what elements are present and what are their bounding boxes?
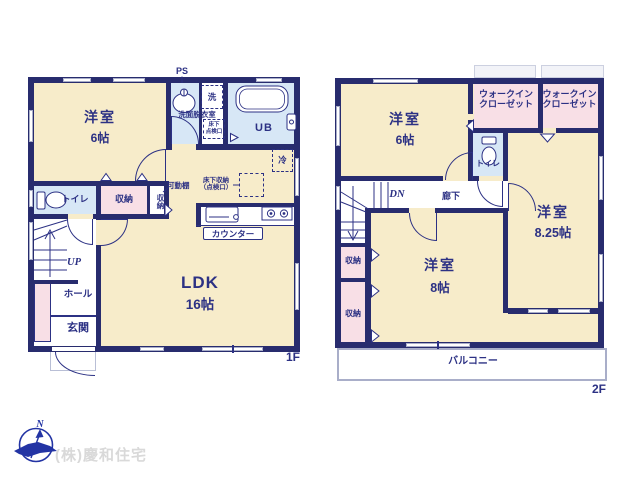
window xyxy=(29,222,34,260)
western6-2f-name: 洋室 xyxy=(377,111,433,127)
wall xyxy=(365,213,371,342)
wall xyxy=(365,208,409,213)
underfloor-hatch-l2: 点検口 xyxy=(206,129,223,136)
wic-a-l1: ウォークイン xyxy=(474,89,538,99)
wall xyxy=(199,203,294,207)
wall xyxy=(34,280,78,284)
wall xyxy=(503,211,508,313)
room-unit-bath xyxy=(228,83,294,144)
window xyxy=(336,186,341,210)
wall xyxy=(34,214,68,219)
floor2-label: 2F xyxy=(586,383,612,397)
window xyxy=(558,309,590,313)
fridge-label: 冷 xyxy=(278,155,287,165)
wic-b-label: ウォークイン クローゼット xyxy=(541,89,598,110)
western-1f-name: 洋室 xyxy=(67,109,133,125)
window xyxy=(113,78,145,83)
wall xyxy=(468,84,473,114)
up-label: UP xyxy=(62,257,86,269)
wall xyxy=(503,133,508,181)
entrance-label: 玄関 xyxy=(58,322,98,335)
closet-1f-b-label: 収納 xyxy=(151,189,164,213)
window xyxy=(373,79,418,84)
room-stairs-2f xyxy=(341,208,365,243)
window xyxy=(29,190,34,207)
eave xyxy=(474,65,536,78)
window xyxy=(599,254,604,302)
washer-label: 洗 xyxy=(208,92,217,102)
wall xyxy=(556,128,598,133)
wic-b-l1: ウォークイン xyxy=(541,89,598,99)
western8-size: 8帖 xyxy=(418,281,462,295)
wall xyxy=(196,203,201,227)
room-shoe-closet xyxy=(34,282,51,342)
hall-label: ホール xyxy=(58,290,98,301)
western825-size: 8.25帖 xyxy=(523,226,583,240)
window-tick xyxy=(232,345,234,353)
closet-1f-a-label: 収納 xyxy=(104,194,144,204)
balcony-label: バルコニー xyxy=(441,356,505,368)
underfloor-hatch-l1: 床下 xyxy=(208,122,219,129)
compass-north-label: N xyxy=(33,419,47,431)
washer-box: 洗 xyxy=(201,85,223,109)
toilet-2f-label: トイレ xyxy=(474,159,502,168)
eave xyxy=(541,65,604,78)
floor1-label: 1F xyxy=(281,351,305,365)
wall xyxy=(341,176,443,181)
window xyxy=(336,106,341,146)
wic-a-label: ウォークイン クローゼット xyxy=(474,89,538,110)
door-arc-entrance xyxy=(55,352,95,376)
wall xyxy=(147,186,150,214)
window xyxy=(599,156,604,200)
western825-name: 洋室 xyxy=(525,204,581,220)
wall xyxy=(166,144,172,150)
wic-b-l2: クローゼット xyxy=(541,99,598,109)
closet-2f-b-label: 収納 xyxy=(341,309,365,318)
dn-label: DN xyxy=(384,189,410,201)
wall xyxy=(341,243,365,247)
ldk-size: 16帖 xyxy=(176,297,224,313)
floorplan-canvas: 洗 床下 点検口 冷 PS 洗面脱衣室 UB 洋室 6帖 トイレ 収納 収納 可… xyxy=(0,0,640,480)
movable-shelf-label: 可動棚 xyxy=(167,182,199,191)
room-kitchen-strip xyxy=(201,207,294,225)
window xyxy=(140,347,164,352)
window xyxy=(528,309,548,313)
corridor-label: 廊下 xyxy=(436,191,466,201)
wall xyxy=(435,208,508,213)
wall xyxy=(341,278,365,282)
floor-storage-l2: （点検口） xyxy=(199,184,233,191)
floor-storage-label: 床下収納 （点検口） xyxy=(199,177,233,192)
western-1f-size: 6帖 xyxy=(72,132,128,146)
toilet-1f-label: トイレ xyxy=(57,194,93,204)
underfloor-hatch-box: 床下 点検口 xyxy=(203,119,225,139)
room-toilet-2f xyxy=(473,133,503,176)
compass-icon xyxy=(14,429,57,462)
wall xyxy=(294,77,300,352)
entrance-step-line xyxy=(51,315,96,317)
fridge-box: 冷 xyxy=(272,149,293,172)
washroom-label: 洗面脱衣室 xyxy=(168,111,226,120)
floor-storage-box xyxy=(239,173,264,197)
western8-name: 洋室 xyxy=(412,257,468,273)
window xyxy=(256,78,282,83)
unit-bath-label: UB xyxy=(250,122,278,135)
western6-2f-size: 6帖 xyxy=(383,134,427,148)
counter-label-box: カウンター xyxy=(203,227,263,240)
closet-2f-a-label: 収納 xyxy=(341,256,365,265)
company-name: (株)慶和住宅 xyxy=(55,447,175,464)
wic-a-l2: クローゼット xyxy=(474,99,538,109)
window xyxy=(63,78,91,83)
entrance-door-opening xyxy=(52,347,95,352)
wall xyxy=(96,186,101,214)
window xyxy=(295,158,300,196)
window-tick xyxy=(437,341,439,349)
ps-label: PS xyxy=(172,66,192,76)
window xyxy=(29,110,34,142)
window xyxy=(295,263,300,310)
ldk-name: LDK xyxy=(172,273,228,293)
